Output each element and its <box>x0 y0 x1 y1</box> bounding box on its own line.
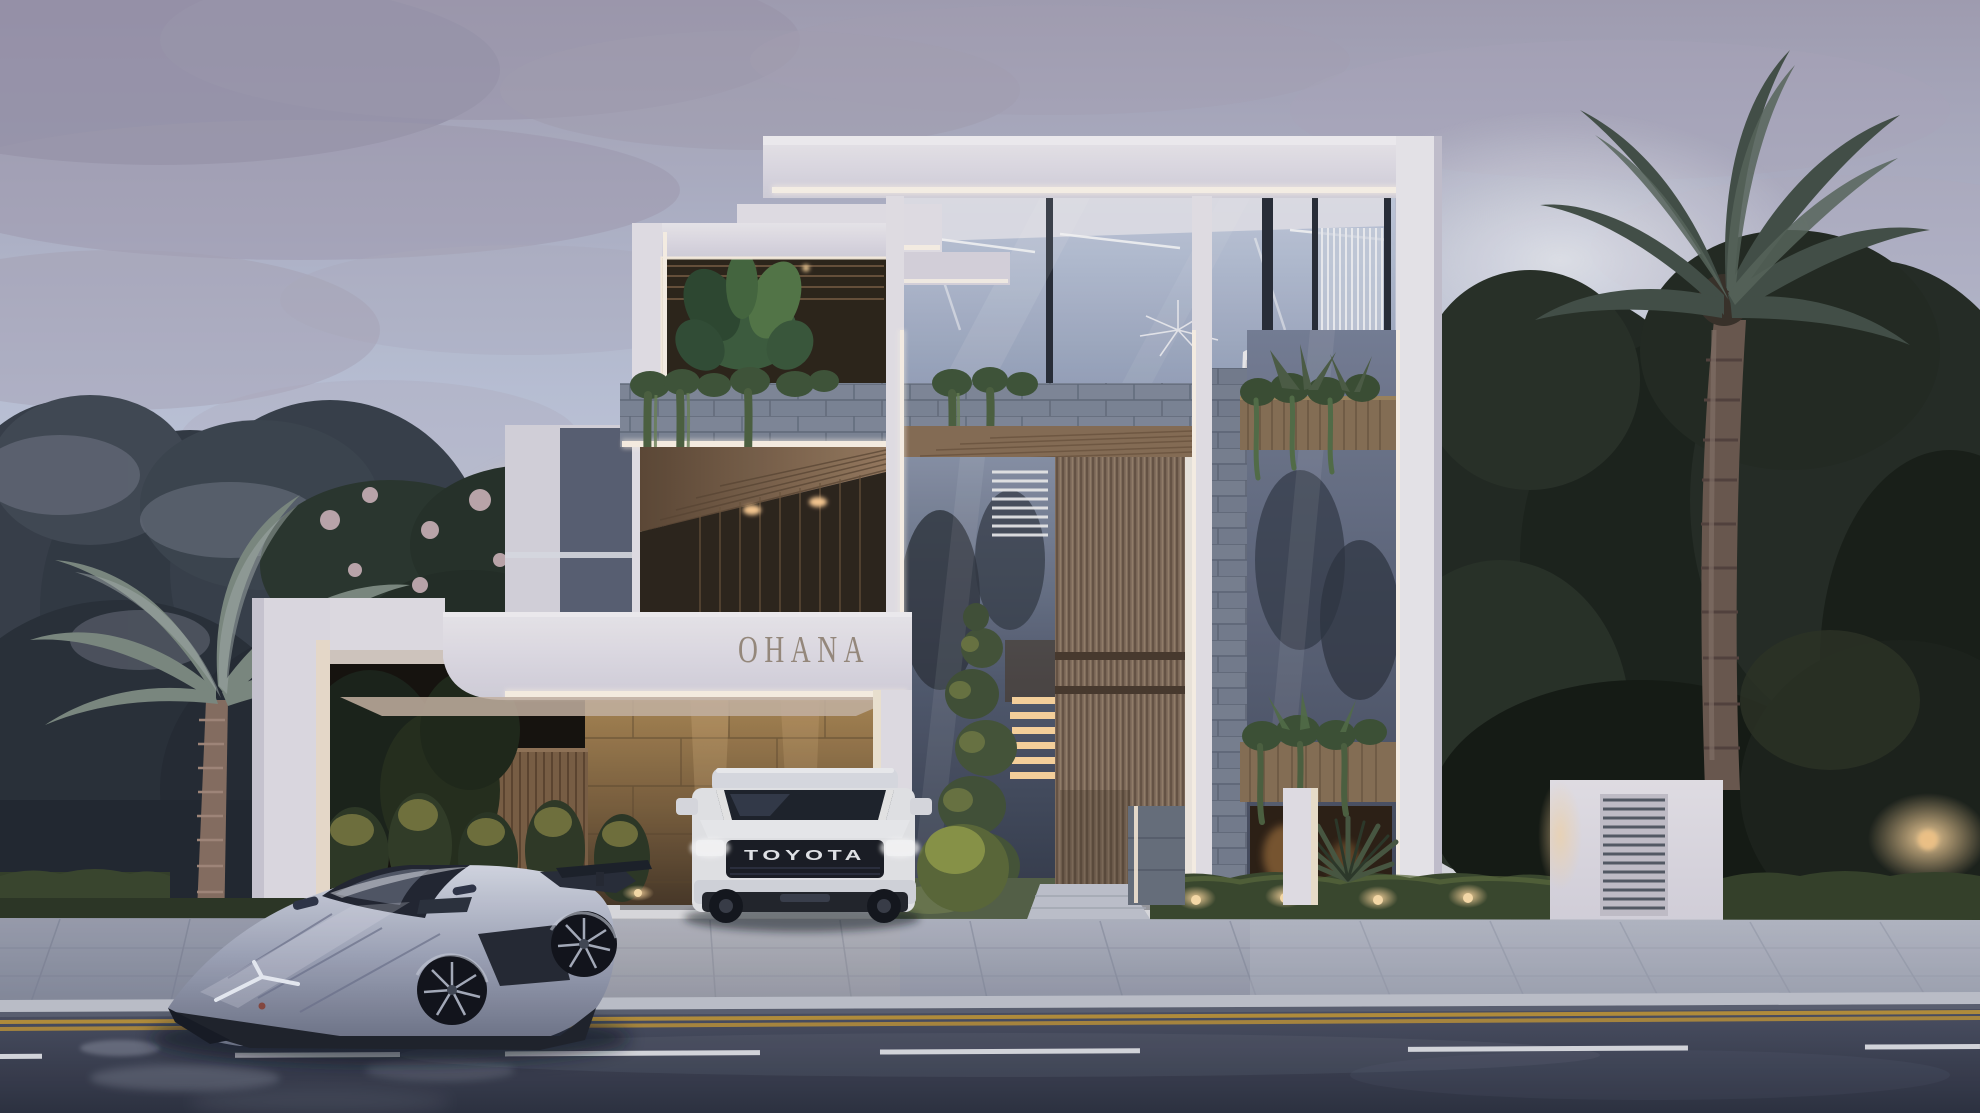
vignette <box>0 0 1980 1113</box>
villa-render: OHANA <box>0 0 1980 1113</box>
